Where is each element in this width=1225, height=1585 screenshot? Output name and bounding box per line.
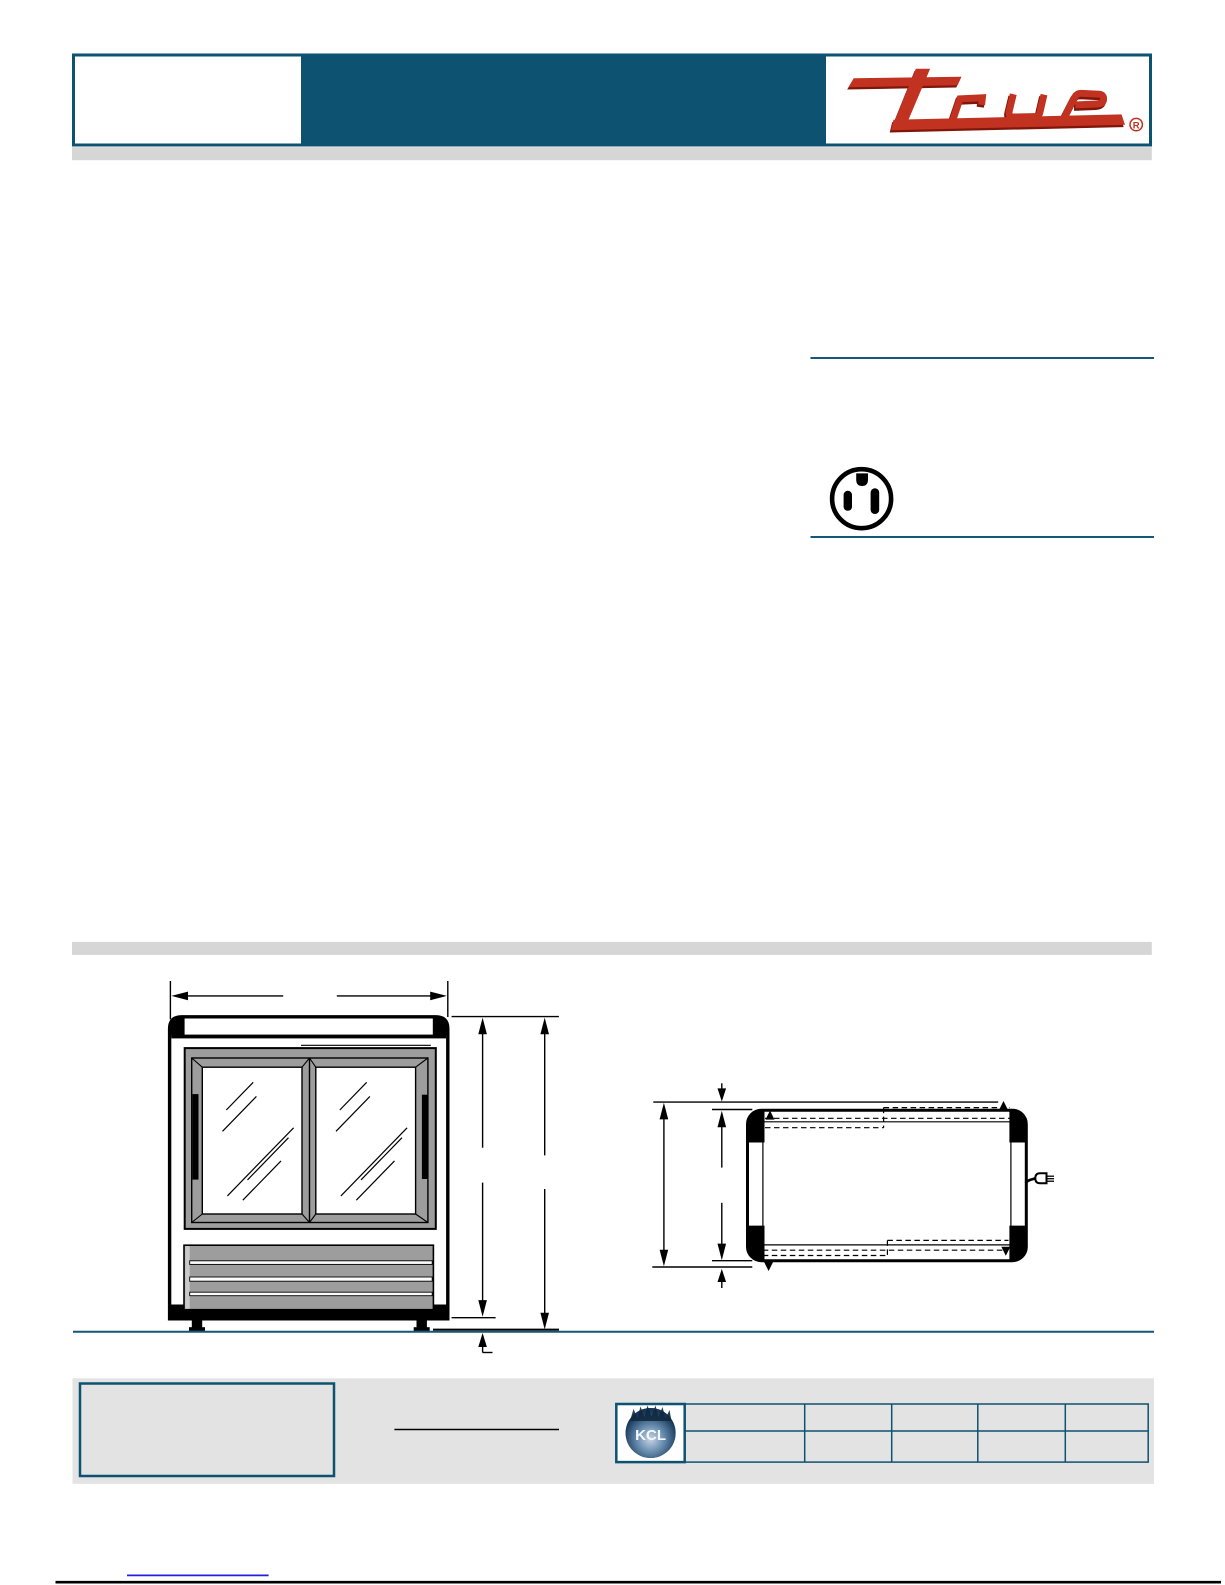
svg-text:KCL: KCL [635, 1427, 666, 1444]
svg-text:R: R [1133, 120, 1140, 131]
